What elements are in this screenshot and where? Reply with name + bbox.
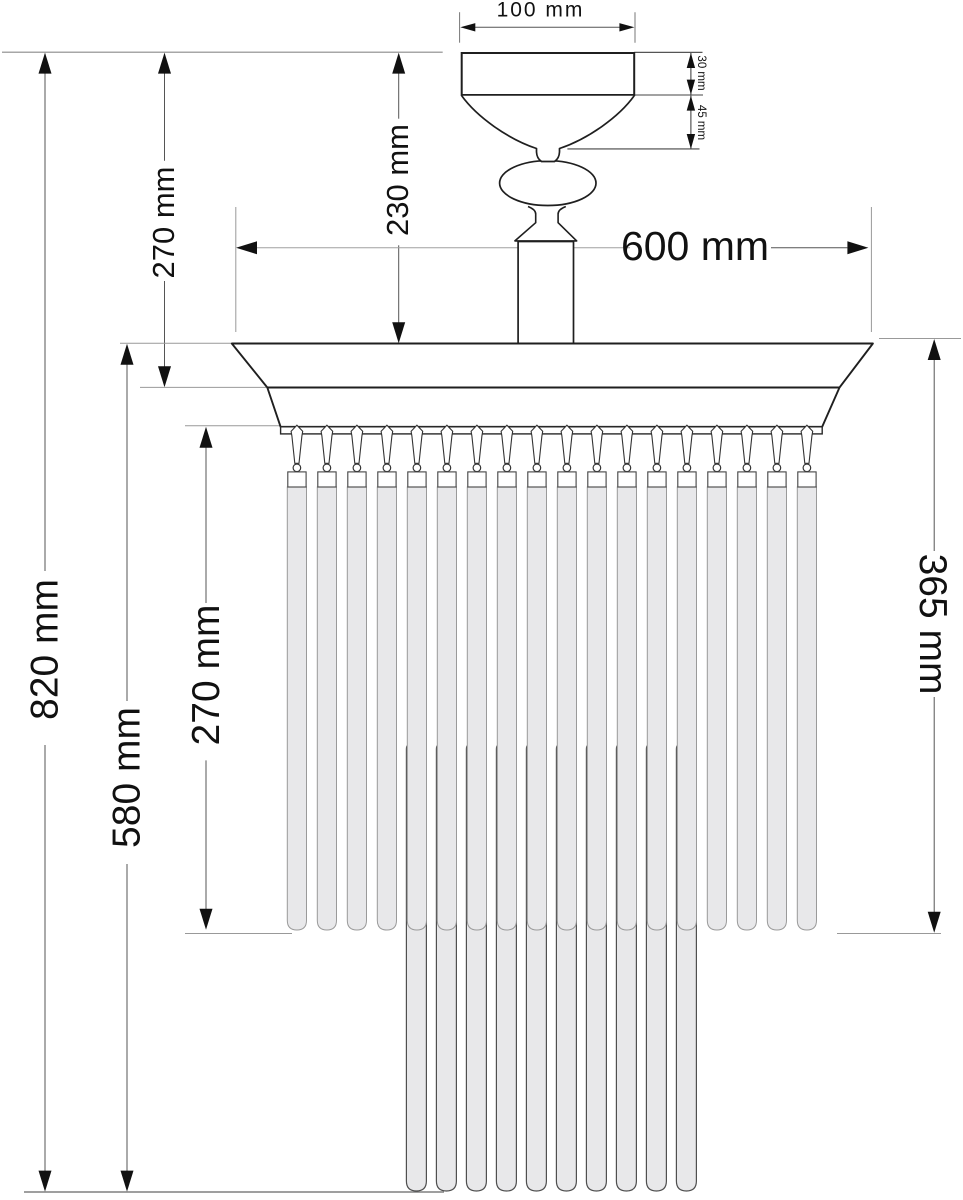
svg-text:45 mm: 45 mm <box>695 105 707 140</box>
svg-text:30 mm: 30 mm <box>695 55 707 90</box>
svg-text:100 mm: 100 mm <box>497 0 585 22</box>
svg-text:580 mm: 580 mm <box>105 707 148 848</box>
svg-text:270 mm: 270 mm <box>146 167 181 279</box>
svg-text:820 mm: 820 mm <box>23 579 66 720</box>
svg-text:600 mm: 600 mm <box>621 223 769 269</box>
svg-text:365 mm: 365 mm <box>911 554 954 695</box>
svg-text:230 mm: 230 mm <box>380 124 415 236</box>
svg-text:270 mm: 270 mm <box>185 605 228 746</box>
